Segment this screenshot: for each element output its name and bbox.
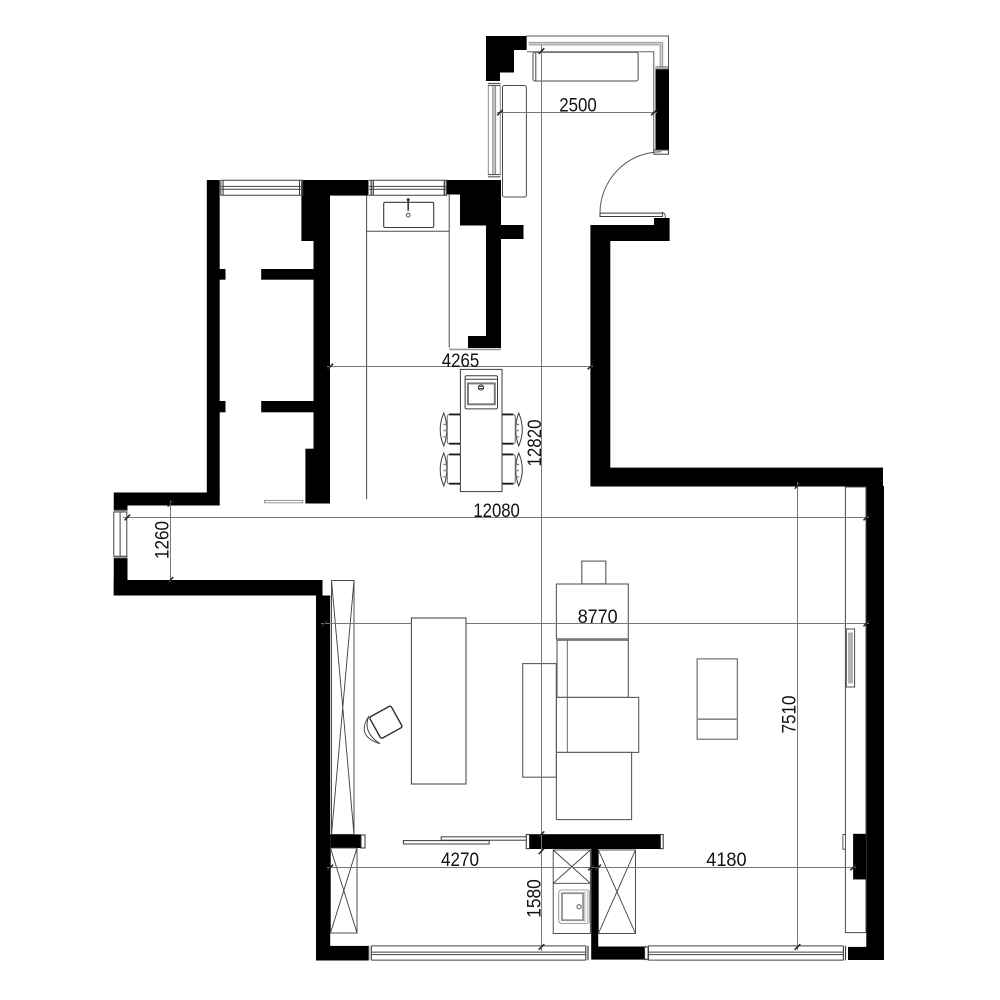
svg-text:12820: 12820	[524, 419, 546, 466]
svg-text:4265: 4265	[442, 350, 480, 372]
svg-text:4270: 4270	[441, 849, 479, 871]
svg-text:8770: 8770	[578, 606, 618, 628]
svg-text:12080: 12080	[473, 500, 520, 522]
svg-text:1260: 1260	[152, 521, 174, 559]
svg-text:2500: 2500	[559, 94, 597, 116]
svg-text:1580: 1580	[523, 879, 545, 918]
svg-text:7510: 7510	[779, 695, 801, 733]
svg-text:4180: 4180	[706, 849, 746, 871]
